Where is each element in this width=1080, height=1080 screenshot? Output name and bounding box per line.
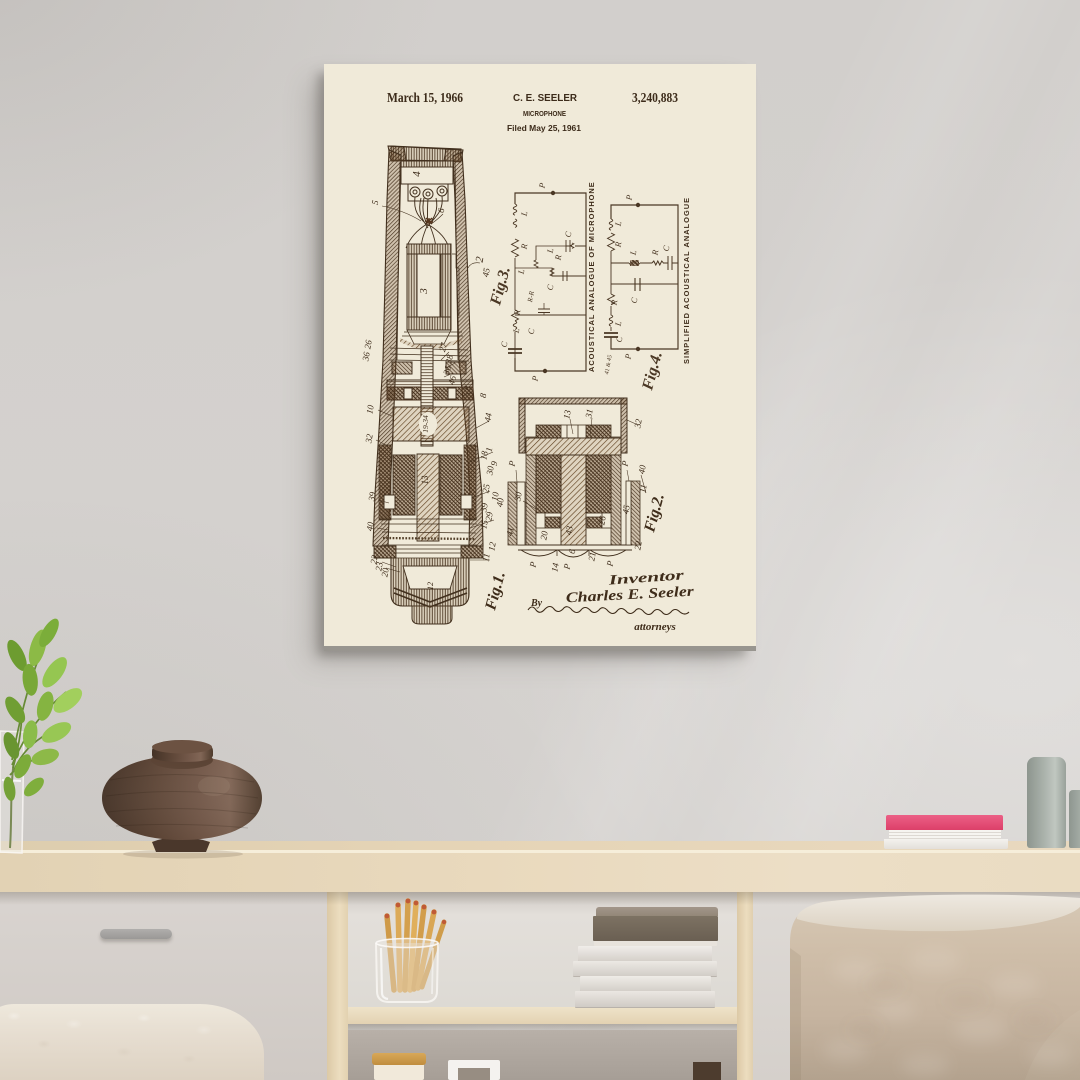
svg-text:P: P	[529, 375, 540, 383]
svg-text:attorneys: attorneys	[634, 621, 676, 633]
svg-text:L: L	[511, 327, 522, 335]
svg-text:R: R	[552, 253, 563, 262]
svg-text:14: 14	[549, 562, 560, 573]
svg-text:March 15, 1966: March 15, 1966	[387, 90, 463, 105]
svg-text:5: 5	[370, 199, 381, 206]
svg-text:C. E. SEELER: C. E. SEELER	[513, 92, 577, 104]
svg-text:32: 32	[632, 418, 644, 430]
svg-text:9: 9	[489, 460, 500, 467]
svg-text:40: 40	[636, 464, 647, 475]
svg-text:22: 22	[632, 540, 643, 551]
svg-text:19-34: 19-34	[421, 415, 430, 433]
svg-text:41: 41	[504, 526, 515, 537]
svg-text:C: C	[545, 283, 556, 291]
svg-text:41 & 45: 41 & 45	[603, 354, 613, 375]
svg-text:44: 44	[482, 412, 493, 423]
svg-text:21: 21	[586, 551, 597, 562]
svg-text:11: 11	[637, 484, 648, 494]
svg-text:C: C	[614, 335, 625, 343]
svg-text:L: L	[516, 268, 527, 276]
svg-text:6: 6	[567, 548, 578, 555]
svg-text:20: 20	[538, 530, 549, 541]
svg-text:ACOUSTICAL ANALOGUE OF MICROPH: ACOUSTICAL ANALOGUE OF MICROPHONE	[587, 181, 596, 372]
svg-text:26: 26	[362, 339, 373, 350]
svg-text:C: C	[526, 327, 537, 335]
svg-text:P: P	[536, 182, 547, 190]
svg-text:L: L	[613, 320, 624, 328]
svg-text:13: 13	[420, 475, 430, 485]
svg-text:MICROPHONE: MICROPHONE	[523, 109, 566, 118]
svg-text:3,240,883: 3,240,883	[632, 90, 678, 105]
svg-text:32: 32	[363, 433, 375, 445]
svg-text:P: P	[622, 353, 633, 361]
svg-text:C: C	[563, 230, 574, 238]
svg-text:R: R	[649, 248, 660, 257]
svg-text:R-R: R-R	[526, 290, 536, 304]
svg-text:12: 12	[426, 582, 435, 590]
svg-text:SIMPLIFIED ACOUSTICAL ANALOGUE: SIMPLIFIED ACOUSTICAL ANALOGUE	[682, 197, 691, 364]
svg-text:C: C	[629, 296, 640, 304]
svg-text:2: 2	[474, 255, 487, 263]
svg-text:Charles E. Seeler: Charles E. Seeler	[565, 584, 694, 607]
svg-text:3: 3	[418, 288, 430, 295]
svg-text:4: 4	[411, 171, 423, 177]
svg-text:P: P	[506, 459, 517, 468]
svg-text:Fig.4.: Fig.4.	[639, 350, 666, 393]
svg-text:P: P	[623, 194, 634, 202]
svg-text:C: C	[661, 244, 672, 252]
svg-text:10: 10	[364, 404, 375, 415]
svg-text:R: R	[511, 308, 522, 317]
svg-text:L: L	[613, 220, 624, 228]
svg-text:20: 20	[379, 567, 390, 578]
svg-text:R: R	[608, 298, 619, 307]
svg-text:31: 31	[583, 408, 595, 420]
svg-text:L: L	[519, 210, 530, 218]
svg-text:Fig.2.: Fig.2.	[641, 492, 668, 535]
svg-text:Filed May 25, 1961: Filed May 25, 1961	[507, 123, 581, 133]
svg-text:L: L	[545, 247, 556, 255]
svg-text:C: C	[499, 340, 510, 348]
svg-text:P: P	[561, 562, 572, 571]
svg-text:11: 11	[480, 553, 491, 563]
svg-text:R: R	[518, 242, 529, 251]
svg-text:8: 8	[478, 392, 489, 399]
svg-text:P: P	[527, 560, 538, 569]
svg-text:L: L	[628, 249, 639, 257]
svg-text:Fig.1.: Fig.1.	[482, 570, 509, 613]
svg-text:P: P	[604, 559, 615, 568]
svg-text:36: 36	[360, 351, 372, 363]
svg-text:45: 45	[480, 267, 491, 278]
svg-text:40: 40	[494, 497, 505, 508]
svg-text:R: R	[612, 240, 623, 249]
svg-text:13: 13	[561, 409, 572, 420]
svg-text:12: 12	[486, 541, 497, 552]
